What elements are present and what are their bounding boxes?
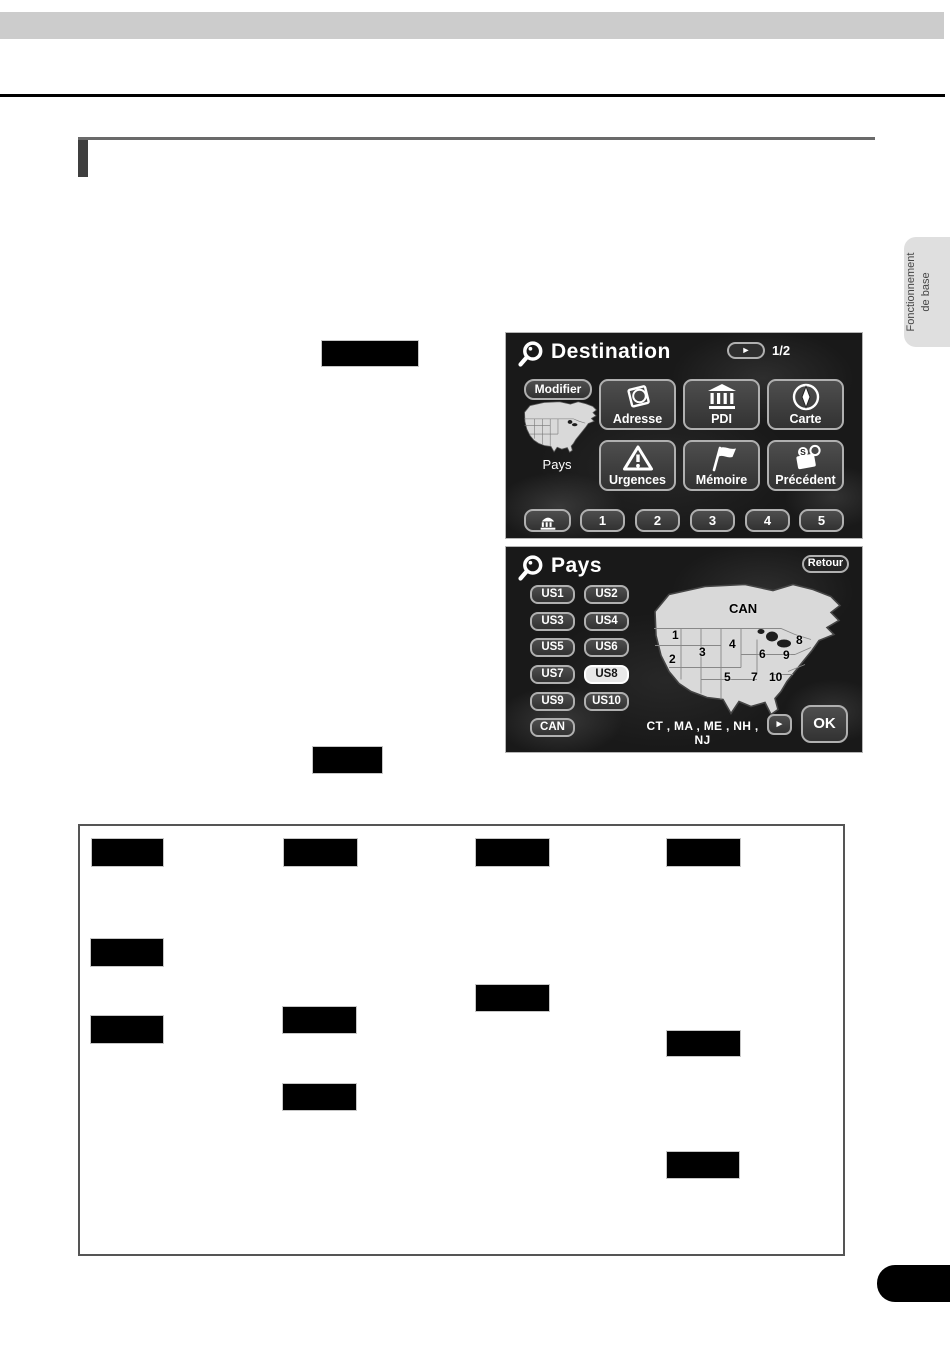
right-arrow-icon: ► xyxy=(775,719,785,730)
redacted-text-block xyxy=(667,1152,739,1178)
memoire-button[interactable]: Mémoire xyxy=(683,440,760,491)
zone-button-us10[interactable]: US10 xyxy=(584,692,629,711)
section-heading-marker xyxy=(78,137,88,177)
preset-button-2[interactable]: 2 xyxy=(635,509,680,532)
home-building-icon xyxy=(537,513,559,530)
svg-text:S: S xyxy=(800,447,806,457)
manual-page: Fonctionnement de base Destination ► 1/2… xyxy=(0,0,950,1346)
map-label-can: CAN xyxy=(729,601,757,616)
pays-screenshot: Pays Retour US1 US2 US3 US4 US5 US6 US7 … xyxy=(506,547,862,752)
map-label-4: 4 xyxy=(729,637,736,651)
compass-icon xyxy=(792,381,820,412)
preset-button-4[interactable]: 4 xyxy=(745,509,790,532)
zone-map: CAN 1 2 3 4 5 6 7 8 9 10 xyxy=(633,579,844,725)
country-map-caption: Pays xyxy=(516,457,598,472)
flag-icon xyxy=(706,442,738,473)
chapter-side-tab-label: Fonctionnement de base xyxy=(904,237,950,347)
adresse-button[interactable]: Adresse xyxy=(599,379,676,430)
section-heading-underline xyxy=(78,137,875,140)
redacted-text-block xyxy=(476,839,549,866)
map-label-8: 8 xyxy=(796,633,803,647)
redacted-text-block xyxy=(667,839,740,866)
zone-button-can[interactable]: CAN xyxy=(530,718,575,737)
redacted-text-block xyxy=(476,985,549,1011)
bank-building-icon xyxy=(706,381,738,412)
retour-button[interactable]: Retour xyxy=(802,555,849,573)
search-icon xyxy=(517,340,545,368)
redacted-text-block xyxy=(91,1016,163,1043)
ok-button[interactable]: OK xyxy=(801,705,848,743)
page-number-tab xyxy=(877,1265,950,1302)
carte-button[interactable]: Carte xyxy=(767,379,844,430)
chapter-side-tab: Fonctionnement de base xyxy=(904,237,950,347)
zone-button-us5[interactable]: US5 xyxy=(530,638,575,657)
preset-button-3[interactable]: 3 xyxy=(690,509,735,532)
country-map-thumbnail xyxy=(516,399,598,457)
map-label-5: 5 xyxy=(724,670,731,684)
redacted-text-block xyxy=(92,839,163,866)
zone-button-us6[interactable]: US6 xyxy=(584,638,629,657)
preset-button-1[interactable]: 1 xyxy=(580,509,625,532)
top-gray-bar xyxy=(0,12,944,39)
redacted-text-block xyxy=(667,1031,740,1056)
header-divider-line xyxy=(0,94,945,97)
zone-button-us2[interactable]: US2 xyxy=(584,585,629,604)
zone-button-us7[interactable]: US7 xyxy=(530,665,575,684)
map-label-10: 10 xyxy=(769,670,782,684)
pdi-button[interactable]: PDI xyxy=(683,379,760,430)
address-book-icon xyxy=(622,381,654,412)
states-scroll-button[interactable]: ► xyxy=(767,714,792,735)
destination-title: Destination xyxy=(551,340,671,364)
zone-button-us8-selected[interactable]: US8 xyxy=(584,665,629,684)
preset-button-5[interactable]: 5 xyxy=(799,509,844,532)
precedent-button[interactable]: S Précédent xyxy=(767,440,844,491)
map-label-3: 3 xyxy=(699,645,706,659)
map-label-2: 2 xyxy=(669,652,676,666)
pays-title: Pays xyxy=(551,554,602,578)
right-arrow-icon: ► xyxy=(742,345,751,355)
modifier-button[interactable]: Modifier xyxy=(524,379,592,400)
zone-button-us9[interactable]: US9 xyxy=(530,692,575,711)
page-indicator: 1/2 xyxy=(772,343,790,358)
next-page-button[interactable]: ► xyxy=(727,342,765,359)
urgences-button[interactable]: Urgences xyxy=(599,440,676,491)
map-label-1: 1 xyxy=(672,628,679,642)
search-icon xyxy=(517,554,545,582)
warning-triangle-icon xyxy=(622,442,654,473)
zone-button-us1[interactable]: US1 xyxy=(530,585,575,604)
redacted-text-block xyxy=(313,747,382,773)
redacted-text-block xyxy=(284,839,357,866)
zone-button-us4[interactable]: US4 xyxy=(584,612,629,631)
map-label-9: 9 xyxy=(783,648,790,662)
redacted-text-block xyxy=(91,939,163,966)
home-button[interactable] xyxy=(524,509,571,532)
map-label-6: 6 xyxy=(759,647,766,661)
previous-destinations-icon: S xyxy=(790,442,822,473)
redacted-text-block xyxy=(283,1084,356,1110)
redacted-text-block xyxy=(322,341,418,366)
redacted-text-block xyxy=(283,1007,356,1033)
zone-button-us3[interactable]: US3 xyxy=(530,612,575,631)
map-label-7: 7 xyxy=(751,670,758,684)
destination-screenshot: Destination ► 1/2 Modifier Pays Adresse xyxy=(506,333,862,538)
selected-states-list: CT , MA , ME , NH , NJ xyxy=(639,719,766,747)
